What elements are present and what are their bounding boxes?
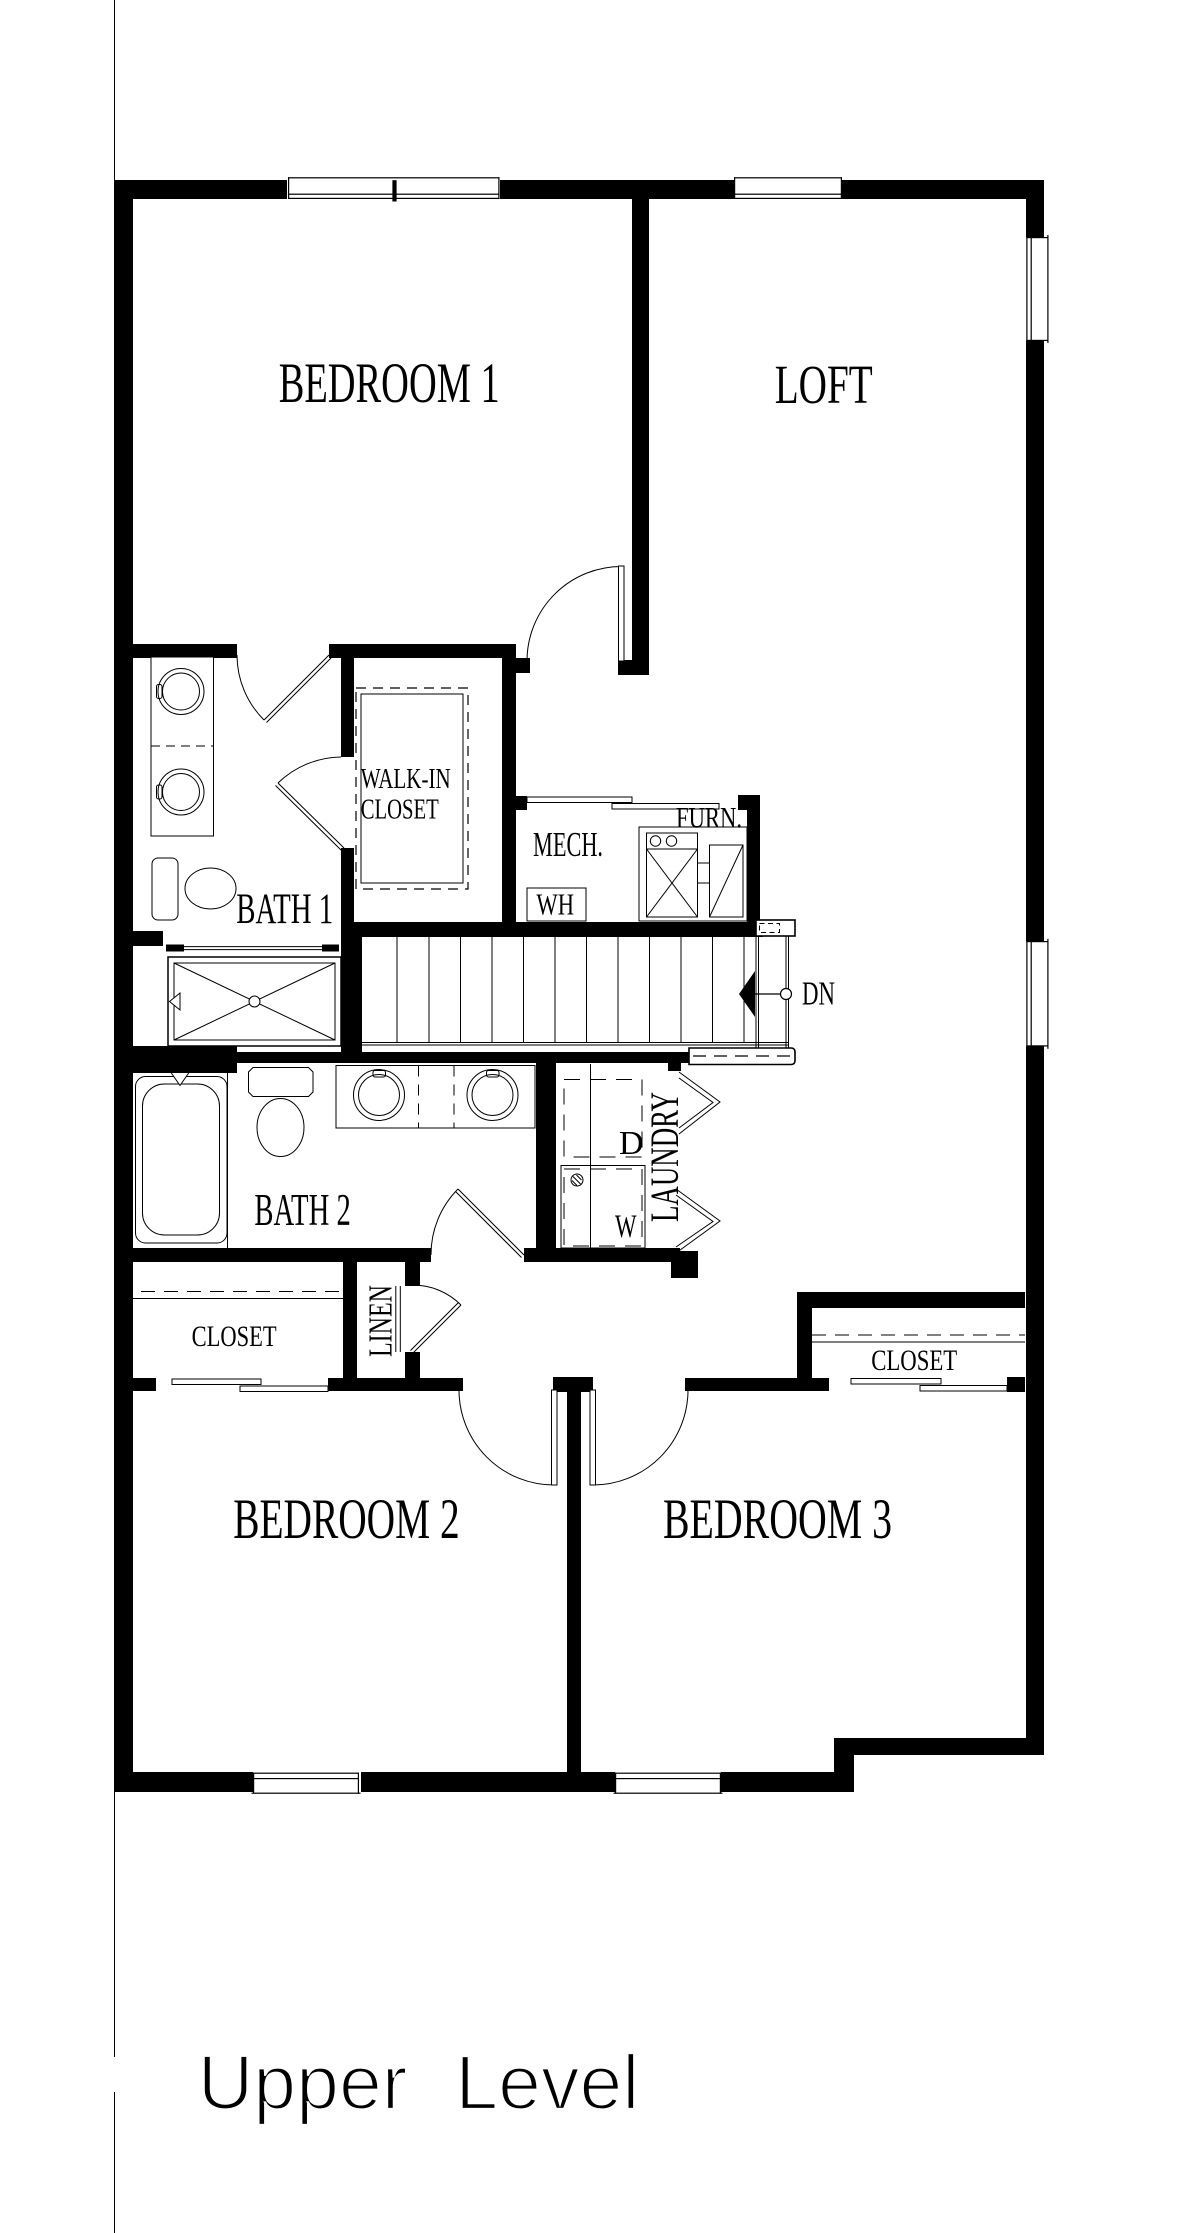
svg-text:WALK-IN: WALK-IN	[361, 764, 451, 795]
svg-text:LOFT: LOFT	[775, 354, 873, 415]
svg-text:LAUNDRY: LAUNDRY	[642, 1092, 687, 1222]
svg-text:Level: Level	[455, 2040, 639, 2126]
svg-text:FURN.: FURN.	[676, 802, 742, 835]
svg-text:DN: DN	[802, 976, 835, 1013]
svg-text:BEDROOM 2: BEDROOM 2	[233, 1488, 460, 1551]
svg-text:W: W	[615, 1209, 637, 1245]
svg-text:CLOSET: CLOSET	[192, 1320, 277, 1353]
svg-text:CLOSET: CLOSET	[361, 794, 439, 825]
svg-text:LINEN: LINEN	[363, 1285, 400, 1357]
svg-text:BEDROOM 3: BEDROOM 3	[663, 1488, 892, 1551]
svg-text:CLOSET: CLOSET	[871, 1344, 957, 1377]
svg-text:WH: WH	[536, 887, 574, 922]
svg-text:Upper: Upper	[198, 2040, 408, 2126]
svg-text:BATH 2: BATH 2	[254, 1185, 350, 1235]
svg-text:D: D	[619, 1125, 644, 1162]
svg-text:MECH.: MECH.	[533, 825, 603, 864]
svg-text:BEDROOM 1: BEDROOM 1	[279, 352, 500, 415]
svg-text:BATH 1: BATH 1	[236, 886, 333, 933]
